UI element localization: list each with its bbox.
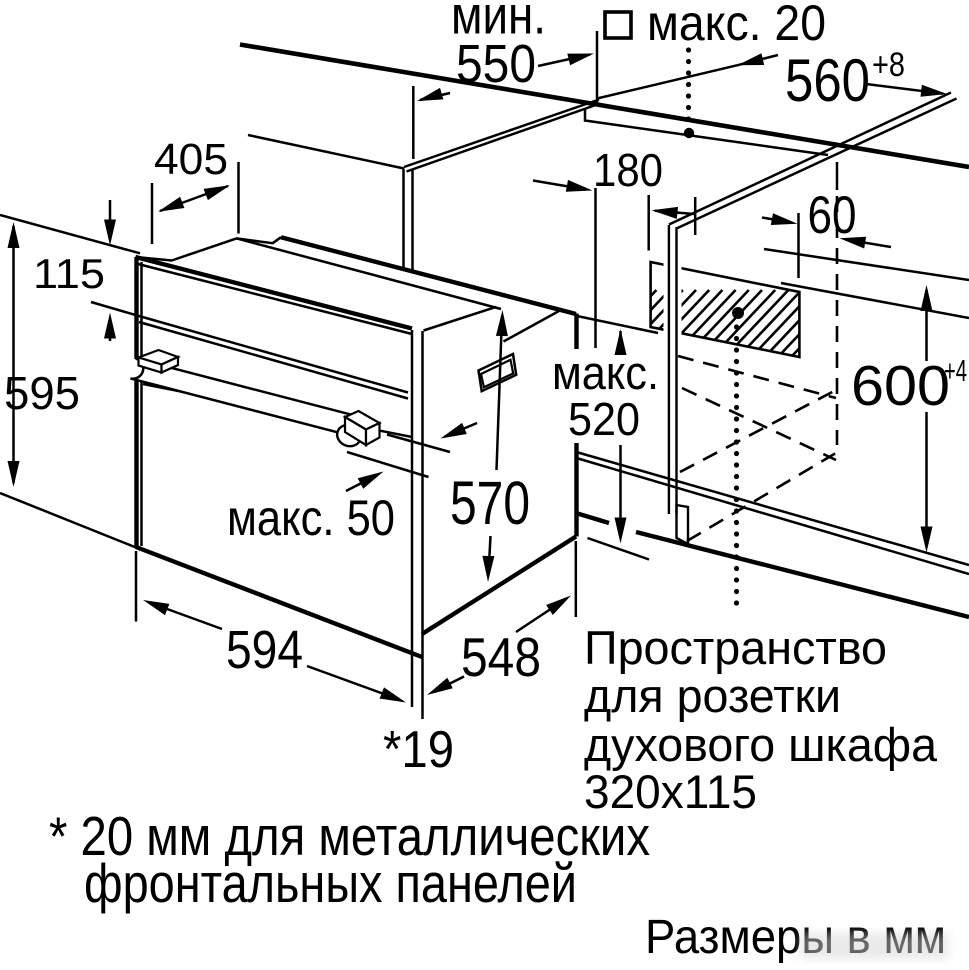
svg-text:фронтальных панелей: фронтальных панелей xyxy=(84,852,577,914)
svg-text:570: 570 xyxy=(450,469,530,537)
svg-text:+8: +8 xyxy=(872,46,905,84)
svg-text:405: 405 xyxy=(154,135,228,184)
svg-text:550: 550 xyxy=(456,34,536,94)
svg-text:духового шкафа: духового шкафа xyxy=(584,719,938,772)
svg-text:560: 560 xyxy=(785,47,870,114)
svg-text:595: 595 xyxy=(4,367,80,419)
svg-text:для розетки: для розетки xyxy=(584,670,841,723)
svg-text:520: 520 xyxy=(568,393,640,445)
svg-text:макс. 20: макс. 20 xyxy=(647,0,826,51)
svg-text:Пространство: Пространство xyxy=(584,622,887,675)
svg-text:макс.: макс. xyxy=(552,346,659,399)
svg-text:594: 594 xyxy=(226,620,303,680)
svg-text:600: 600 xyxy=(851,354,950,418)
svg-text:+4: +4 xyxy=(944,353,967,388)
svg-text:*19: *19 xyxy=(383,721,454,779)
svg-text:60: 60 xyxy=(808,186,857,245)
svg-text:115: 115 xyxy=(33,250,105,297)
svg-text:макс. 50: макс. 50 xyxy=(227,490,395,546)
svg-text:180: 180 xyxy=(593,144,663,196)
svg-text:548: 548 xyxy=(461,626,541,688)
